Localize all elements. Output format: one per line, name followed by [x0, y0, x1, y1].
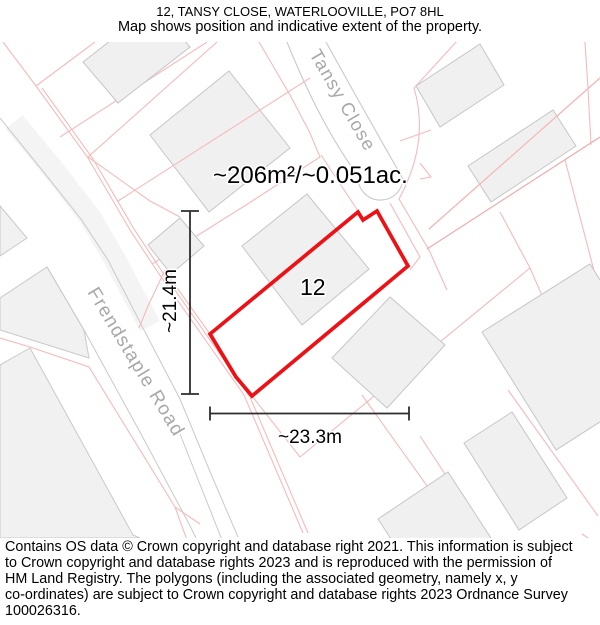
- svg-text:12: 12: [300, 274, 326, 300]
- svg-text:~206m²/~0.051ac.: ~206m²/~0.051ac.: [213, 162, 408, 189]
- svg-text:~23.3m: ~23.3m: [278, 427, 342, 448]
- svg-text:~21.4m: ~21.4m: [160, 269, 181, 333]
